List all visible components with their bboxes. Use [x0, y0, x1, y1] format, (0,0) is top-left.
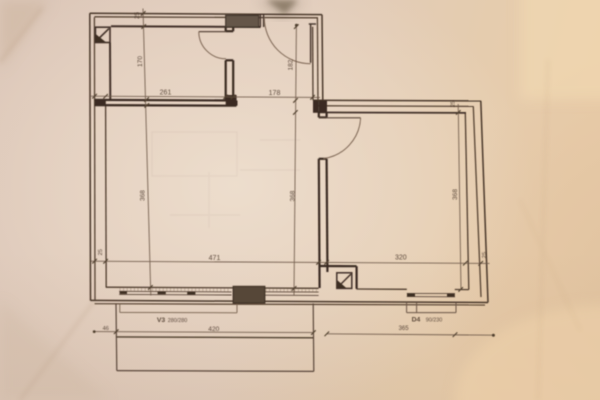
svg-text:365: 365: [399, 326, 410, 332]
svg-text:182: 182: [288, 59, 295, 70]
svg-text:25: 25: [135, 12, 141, 19]
svg-text:46: 46: [103, 326, 109, 332]
svg-text:280/280: 280/280: [168, 318, 188, 324]
svg-text:420: 420: [208, 326, 219, 333]
svg-text:V3: V3: [157, 317, 166, 324]
svg-text:90/230: 90/230: [426, 318, 443, 324]
svg-text:368: 368: [290, 190, 297, 201]
svg-text:320: 320: [395, 255, 407, 262]
svg-text:178: 178: [269, 90, 281, 97]
svg-text:25: 25: [482, 252, 488, 258]
svg-text:170: 170: [137, 56, 144, 67]
svg-text:D4: D4: [412, 316, 421, 323]
svg-text:261: 261: [160, 90, 172, 97]
svg-text:368: 368: [140, 190, 147, 201]
svg-text:25: 25: [451, 101, 457, 107]
svg-text:368: 368: [452, 189, 459, 200]
svg-text:25: 25: [98, 249, 104, 255]
svg-text:471: 471: [209, 255, 221, 262]
